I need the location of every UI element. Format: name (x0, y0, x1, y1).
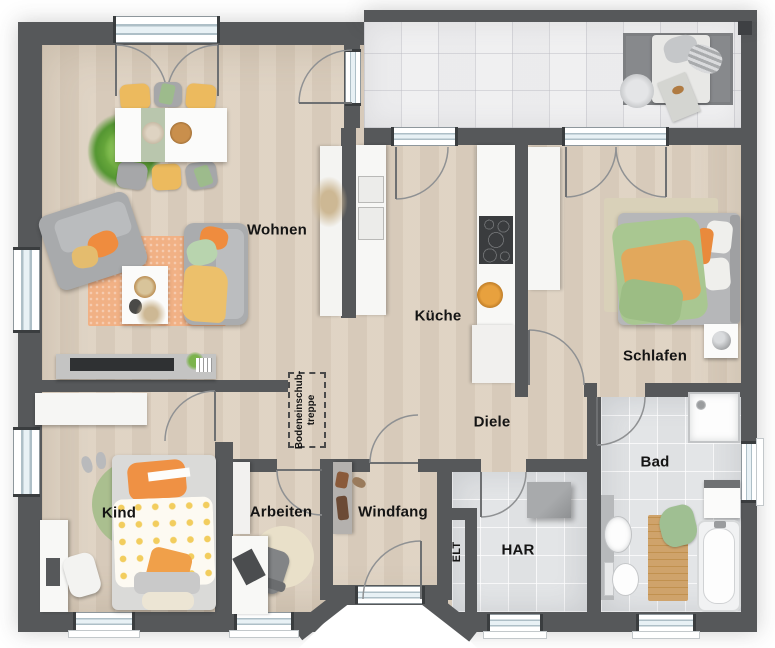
room-label-arbeiten: Arbeiten (250, 504, 312, 521)
entry-coat (336, 495, 349, 520)
room-label-har: HAR (501, 542, 534, 559)
heating-unit (527, 482, 571, 518)
cooktop (479, 216, 513, 264)
attic-stairs-line2: treppe (306, 362, 318, 458)
bath-shelf (704, 480, 740, 518)
dining-chair (185, 83, 217, 112)
kids-pillow-gray (134, 572, 200, 594)
room-label-bad: Bad (641, 454, 670, 471)
floor-plan: Bodeneinschub- treppe Wohnen Küche Schla… (0, 0, 775, 648)
sofa-blanket-yellow (181, 265, 229, 324)
room-label-kind: Kind (102, 505, 136, 522)
fruit-bowl (477, 282, 503, 308)
toilet-bowl (612, 563, 639, 596)
tv-screen (70, 358, 174, 371)
dried-plant-tall (310, 176, 348, 228)
office-cabinet (233, 462, 250, 534)
room-label-windfang: Windfang (358, 504, 428, 521)
room-label-diele: Diele (474, 414, 511, 431)
terrace-side-table (620, 74, 654, 108)
kids-monitor (46, 558, 60, 586)
coffee-table-tray (134, 276, 156, 298)
dining-chair (119, 83, 151, 111)
kitchen-lower-cabinet (472, 325, 515, 383)
room-label-kueche: Küche (415, 308, 462, 325)
bathtub-faucet (714, 521, 726, 528)
kitchen-appliance (358, 176, 384, 203)
dining-chair (115, 160, 148, 191)
nightstand-lamp (712, 331, 731, 350)
table-centerpiece (142, 122, 164, 144)
room-label-elt: ELT (451, 542, 463, 563)
bathtub-inner (703, 528, 735, 604)
room-label-wohnen: Wohnen (247, 222, 307, 239)
kids-wardrobe (35, 393, 147, 425)
bedroom-wardrobe (528, 147, 560, 290)
kids-pillow-fur (142, 592, 194, 610)
bath-sink (604, 516, 632, 553)
table-bowl (170, 122, 192, 144)
shower-drain (696, 400, 706, 410)
shower (688, 392, 740, 443)
kitchen-appliance (358, 207, 384, 240)
tall-sideboard (320, 146, 342, 316)
sideboard-books (196, 358, 212, 372)
attic-stairs-line1: Bodeneinschub- (294, 362, 306, 458)
room-label-schlafen: Schlafen (623, 348, 687, 365)
dried-plant (136, 298, 166, 330)
dining-chair (151, 163, 181, 190)
